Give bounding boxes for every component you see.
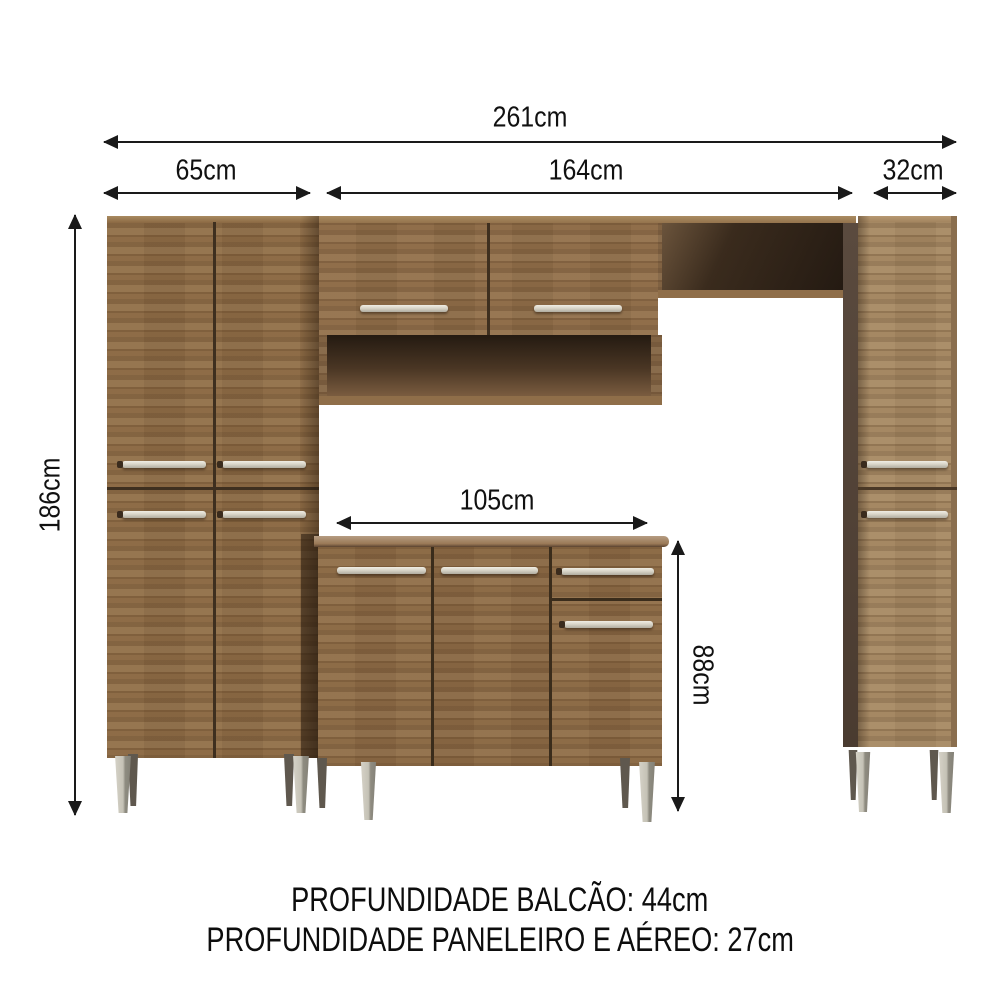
door-handle (222, 461, 306, 468)
dimension-arrow-counter-height (677, 541, 679, 811)
cabinet-leg (358, 762, 379, 820)
cabinet-leg (936, 752, 957, 813)
door-handle (222, 511, 306, 518)
dimension-label-total-width: 261cm (493, 102, 568, 135)
niche-right-frame (651, 335, 662, 403)
right-cabinet-right-edge (951, 216, 957, 747)
door-handle (866, 461, 948, 468)
door-handle (337, 567, 426, 574)
dimension-arrow-total-width (104, 141, 956, 143)
dimension-label-counter-height: 88cm (686, 645, 719, 706)
dimension-arrow-counter-width (337, 522, 647, 524)
footer-note-counter-depth: PROFUNDIDADE BALCÃO: 44cm (0, 881, 1000, 920)
niche-bottom-shelf (319, 396, 662, 405)
dimension-arrow-total-height (74, 215, 76, 815)
dimension-label-counter-width: 105cm (460, 485, 535, 518)
product-dimension-diagram: 261cm 65cm 164cm 32cm 186cm (0, 0, 1000, 1000)
aerial-door-divider (487, 223, 490, 335)
countertop (314, 536, 669, 547)
dimension-arrow-right-width (874, 192, 956, 194)
dimension-label-left-width: 65cm (176, 155, 237, 188)
door-handle (534, 305, 622, 312)
dimension-label-middle-width: 164cm (549, 155, 624, 188)
dimension-label-right-width: 32cm (883, 155, 944, 188)
footer-note-pantry-depth-text: PROFUNDIDADE PANELEIRO E AÉREO: 27cm (206, 921, 793, 960)
counter-door-divider (549, 547, 552, 766)
dimension-arrow-left-width (104, 192, 310, 194)
door-handle (360, 305, 448, 312)
door-handle (122, 461, 206, 468)
left-cabinet-shelf-divider (107, 487, 319, 490)
open-shelf-niche (327, 335, 651, 396)
counter-shadow-on-cabinet (301, 534, 319, 758)
open-compartment (662, 223, 843, 290)
cabinet-leg (928, 750, 940, 800)
right-cabinet-inner-shadow (858, 216, 870, 747)
footer-note-pantry-depth: PROFUNDIDADE PANELEIRO E AÉREO: 27cm (0, 921, 1000, 960)
dimension-arrow-middle-width (327, 192, 852, 194)
right-cabinet-divider (858, 487, 957, 490)
niche-left-frame (319, 335, 327, 403)
drawer-handle (561, 568, 654, 575)
door-handle (122, 511, 206, 518)
right-cabinet-body (858, 216, 951, 747)
right-cabinet-top-edge (858, 216, 951, 222)
dimension-label-total-height: 186cm (35, 458, 68, 533)
counter-door-divider (431, 547, 434, 766)
left-cabinet-door-divider (213, 222, 216, 758)
door-handle (866, 511, 948, 518)
compartment-bottom-shelf (658, 290, 845, 298)
footer-note-counter-depth-text: PROFUNDIDADE BALCÃO: 44cm (291, 881, 708, 920)
right-cabinet-side-panel (843, 223, 858, 747)
door-handle (441, 567, 538, 574)
cabinet-leg (636, 762, 658, 822)
counter-body (318, 547, 662, 766)
drawer-divider (552, 598, 662, 601)
door-handle (564, 621, 653, 628)
